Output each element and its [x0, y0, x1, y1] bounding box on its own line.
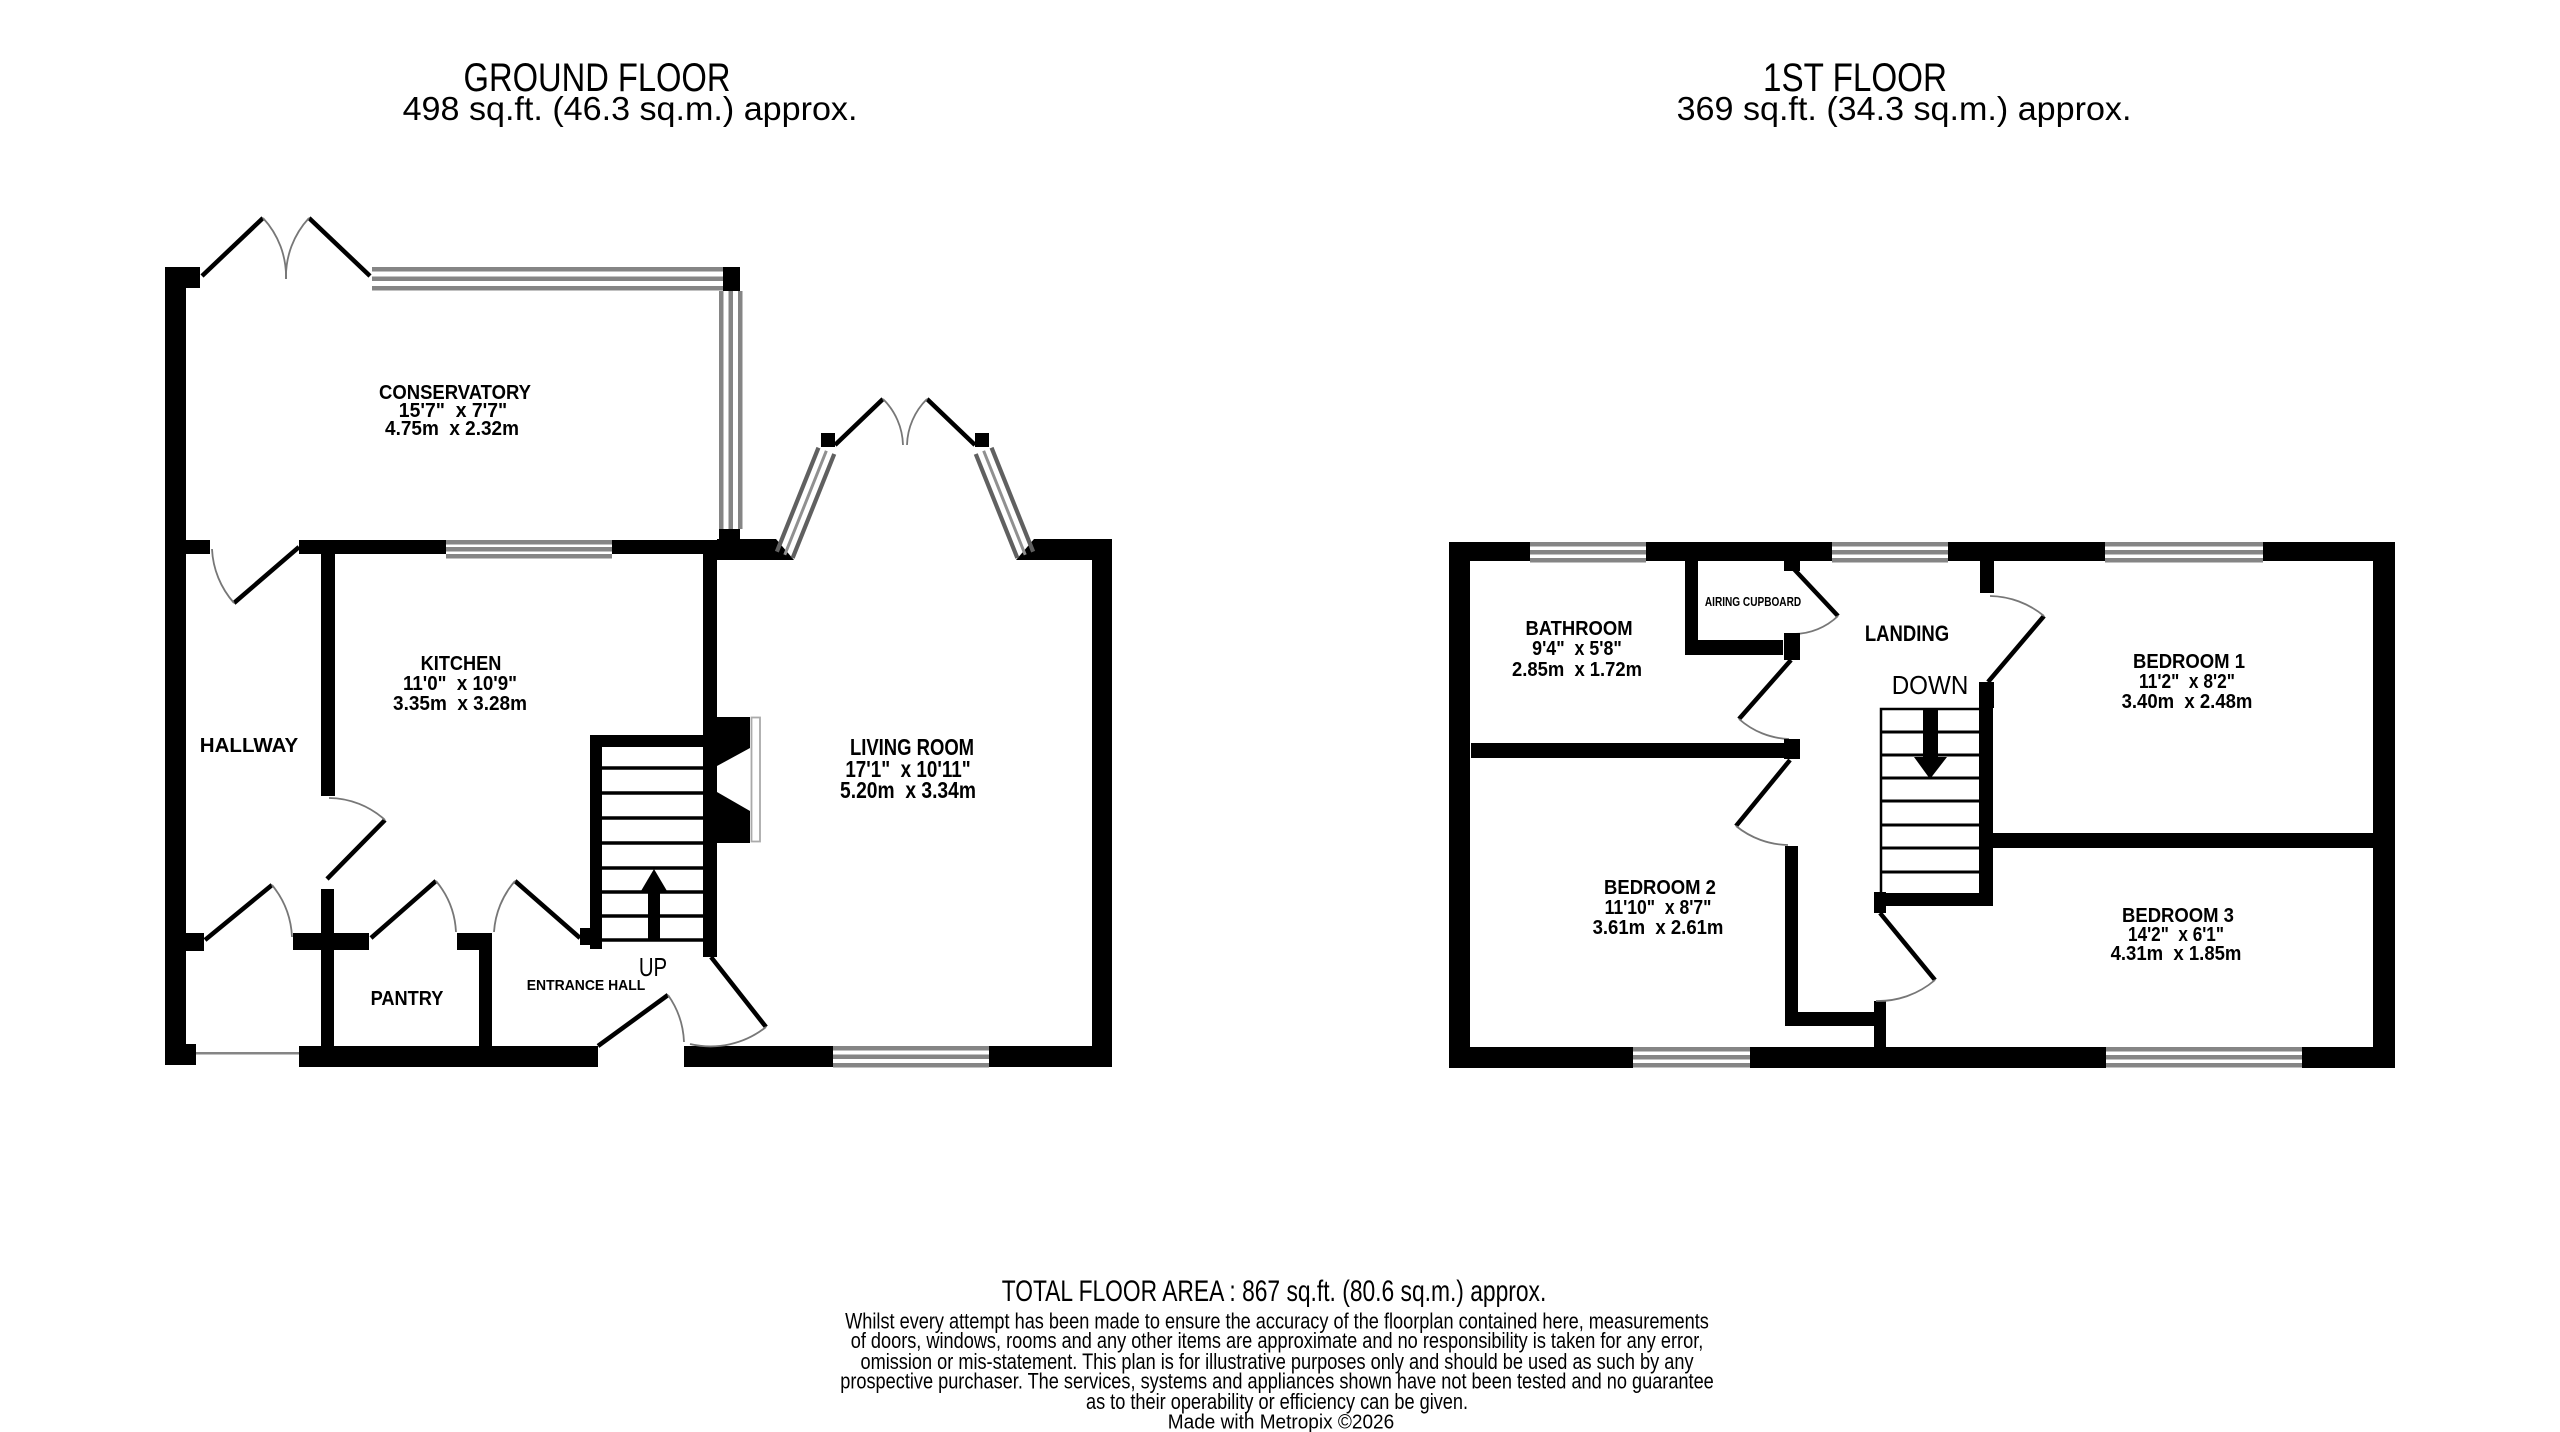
svg-text:4.75m x 2.32m: 4.75m x 2.32m: [385, 418, 519, 441]
svg-text:369 sq.ft. (34.3 sq.m.) approx: 369 sq.ft. (34.3 sq.m.) approx.: [1677, 91, 2132, 127]
svg-text:3.61m x 2.61m: 3.61m x 2.61m: [1593, 917, 1724, 939]
svg-text:PANTRY: PANTRY: [371, 987, 444, 1010]
svg-text:2.85m x 1.72m: 2.85m x 1.72m: [1512, 659, 1642, 681]
svg-text:498 sq.ft. (46.3 sq.m.) approx: 498 sq.ft. (46.3 sq.m.) approx.: [403, 91, 858, 127]
svg-text:3.35m x 3.28m: 3.35m x 3.28m: [393, 693, 527, 716]
svg-text:5.20m x 3.34m: 5.20m x 3.34m: [840, 777, 976, 803]
svg-text:9'4" x 5'8": 9'4" x 5'8": [1532, 638, 1622, 660]
svg-text:DOWN: DOWN: [1892, 671, 1969, 700]
svg-text:TOTAL FLOOR AREA : 867 sq.ft.: TOTAL FLOOR AREA : 867 sq.ft. (80.6 sq.m…: [1002, 1274, 1547, 1308]
svg-text:BATHROOM: BATHROOM: [1525, 618, 1632, 640]
svg-text:11'10" x 8'7": 11'10" x 8'7": [1605, 896, 1712, 918]
svg-text:14'2" x 6'1": 14'2" x 6'1": [2128, 923, 2224, 946]
svg-text:ENTRANCE HALL: ENTRANCE HALL: [527, 978, 646, 994]
svg-text:Made with Metropix ©2026: Made with Metropix ©2026: [1168, 1411, 1394, 1432]
svg-text:3.40m x 2.48m: 3.40m x 2.48m: [2122, 691, 2253, 713]
svg-text:HALLWAY: HALLWAY: [200, 734, 299, 757]
svg-text:LANDING: LANDING: [1865, 621, 1949, 646]
svg-text:11'2" x 8'2": 11'2" x 8'2": [2139, 670, 2235, 692]
svg-text:AIRING CUPBOARD: AIRING CUPBOARD: [1705, 596, 1801, 609]
svg-text:4.31m x 1.85m: 4.31m x 1.85m: [2111, 943, 2242, 965]
